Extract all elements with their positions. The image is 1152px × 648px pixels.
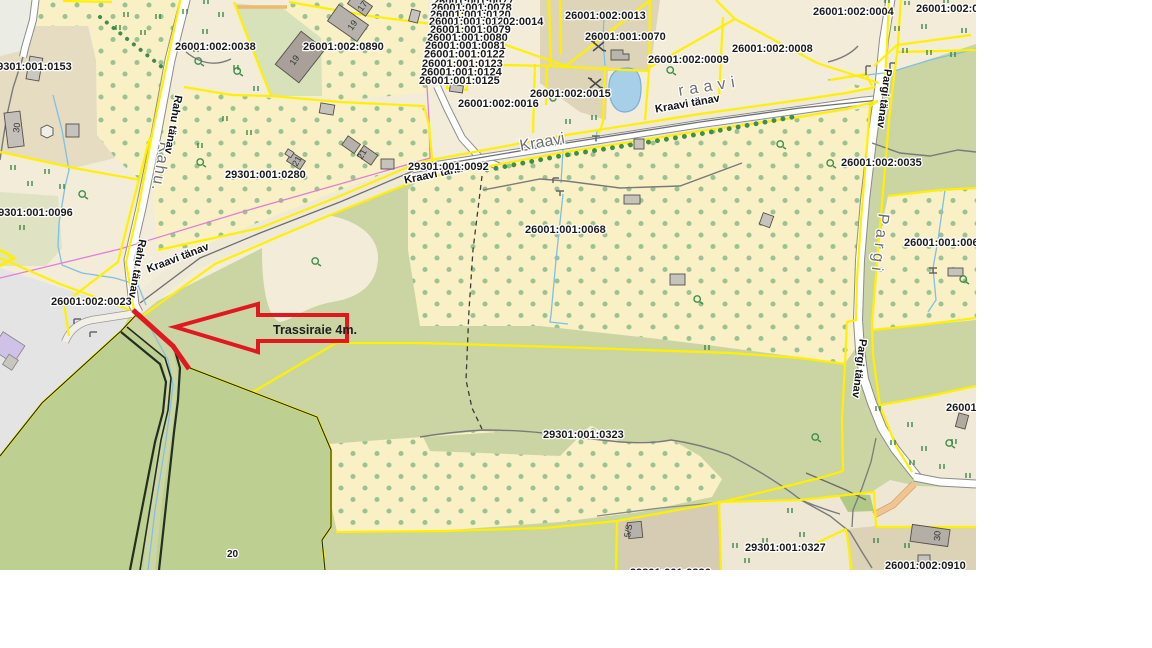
svg-text:20: 20 bbox=[227, 549, 239, 560]
svg-text:Trassiraie 4m.: Trassiraie 4m. bbox=[273, 323, 357, 337]
svg-text:30: 30 bbox=[932, 531, 943, 542]
svg-text:29301:001:0323: 29301:001:0323 bbox=[543, 429, 624, 441]
svg-text:26001:002:0004: 26001:002:0004 bbox=[813, 6, 895, 18]
svg-text:26001:002:0890: 26001:002:0890 bbox=[303, 41, 384, 53]
svg-text:26001:002:0015: 26001:002:0015 bbox=[530, 88, 611, 100]
svg-text:26001:002:0008: 26001:002:0008 bbox=[732, 43, 813, 55]
svg-text:29301:001:0327: 29301:001:0327 bbox=[745, 542, 826, 554]
svg-text:26001:002:0009: 26001:002:0009 bbox=[648, 54, 729, 66]
svg-text:26001:001:0125: 26001:001:0125 bbox=[419, 75, 500, 87]
svg-text:26001:002:0038: 26001:002:0038 bbox=[175, 41, 256, 53]
svg-text:26001:001:0068: 26001:001:0068 bbox=[525, 224, 606, 236]
svg-text:26001:001:0067: 26001:001:0067 bbox=[904, 237, 985, 249]
svg-text:29301:001:0092: 29301:001:0092 bbox=[408, 161, 489, 173]
svg-text:29301:001:0096: 29301:001:0096 bbox=[0, 207, 73, 219]
svg-text:26001:002:0035: 26001:002:0035 bbox=[841, 157, 922, 169]
svg-text:26001:002:0023: 26001:002:0023 bbox=[51, 296, 132, 308]
svg-text:30: 30 bbox=[11, 122, 22, 133]
svg-text:26001:001:0070: 26001:001:0070 bbox=[585, 31, 666, 43]
svg-text:29301:001:0280: 29301:001:0280 bbox=[225, 169, 306, 181]
svg-text:29301:001:0153: 29301:001:0153 bbox=[0, 61, 72, 73]
svg-text:26001:002:0013: 26001:002:0013 bbox=[565, 10, 646, 22]
svg-text:26001:002:0016: 26001:002:0016 bbox=[458, 98, 539, 110]
